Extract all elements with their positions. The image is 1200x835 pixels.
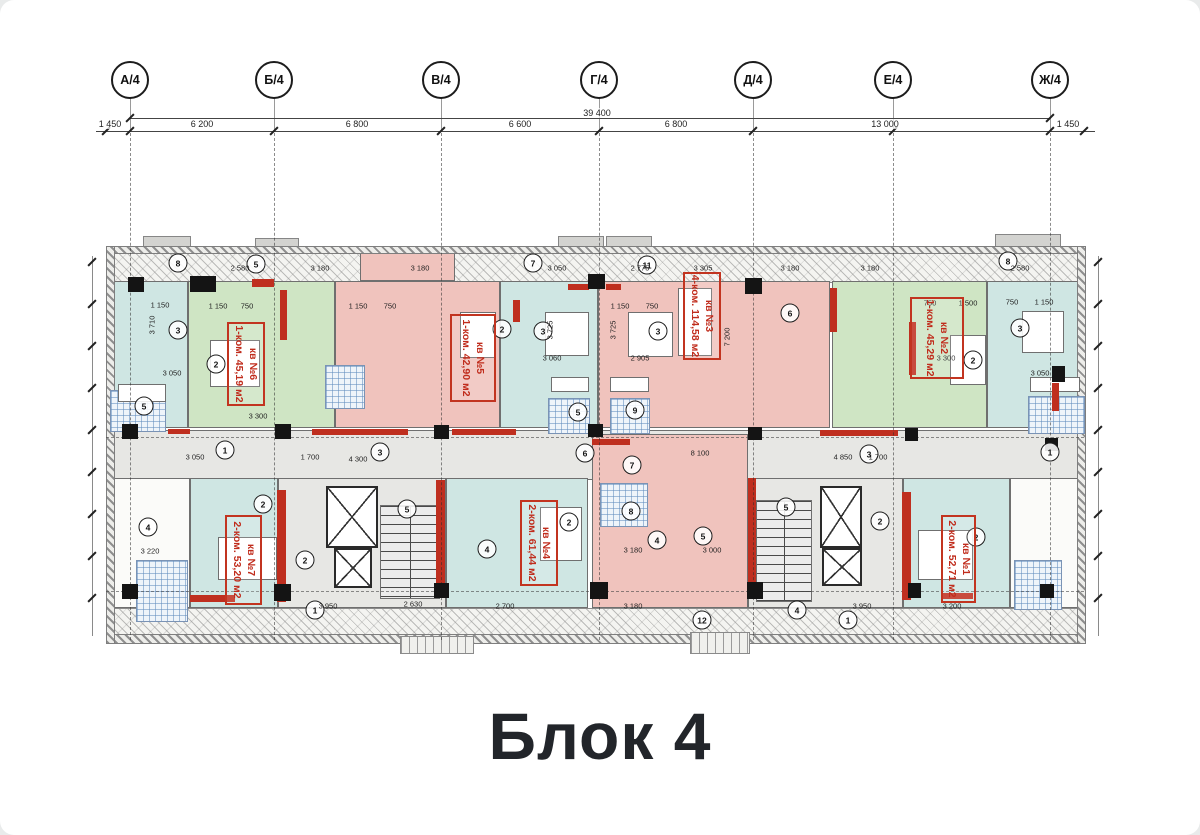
- interior-dimension: 3 725: [609, 321, 618, 340]
- interior-dimension: 3 220: [141, 547, 160, 556]
- interior-dimension: 1 700: [301, 453, 320, 462]
- column-marker: [905, 428, 918, 441]
- bearing-wall-marker: [606, 284, 621, 290]
- interior-dimension: 1 150: [151, 301, 170, 310]
- blueprint-canvas: А/4Б/4В/4Г/4Д/4Е/4Ж/4 39 4001 4506 2006 …: [0, 0, 1200, 835]
- interior-dimension: 3 050: [186, 453, 205, 462]
- room-number-bubble: 1: [216, 441, 235, 460]
- edge-dimension-chain: [92, 256, 93, 636]
- segment-dimension-label: 6 800: [663, 119, 690, 129]
- interior-dimension: 1 150: [349, 302, 368, 311]
- axis-grid-line: [130, 133, 131, 640]
- total-dimension-line: [130, 118, 1050, 119]
- exterior-wall: [106, 246, 1086, 254]
- interior-dimension: 3 950: [853, 602, 872, 611]
- axis-grid-line: [441, 133, 442, 640]
- segment-dimension-label: 1 450: [1055, 119, 1082, 129]
- apt-7-label: кв №72-ком. 53,20 м2: [225, 515, 262, 605]
- room-number-bubble: 6: [576, 444, 595, 463]
- apt-1-label-text: кв №12-ком. 52,71 м2: [944, 510, 972, 608]
- axis-grid-line: [274, 133, 275, 640]
- interior-dimension: 1 150: [209, 302, 228, 311]
- axis-extension-line: [441, 97, 442, 131]
- room-number-bubble: 2: [207, 355, 226, 374]
- room-number-bubble: 4: [648, 531, 667, 550]
- elevator-shaft: [334, 548, 372, 588]
- interior-dimension: 2 630: [404, 600, 423, 609]
- room-number-bubble: 3: [1011, 319, 1030, 338]
- axis-bubble: А/4: [111, 61, 149, 99]
- interior-dimension: 4 300: [349, 455, 368, 464]
- column-marker: [588, 274, 605, 289]
- room-number-bubble: 5: [694, 527, 713, 546]
- interior-dimension: 7 200: [723, 328, 732, 347]
- bathroom-tiles: [325, 365, 365, 409]
- interior-dimension: 3 050: [548, 264, 567, 273]
- block-title: Блок 4: [0, 698, 1200, 774]
- interior-dimension: 1 700: [869, 453, 888, 462]
- room-number-bubble: 3: [169, 321, 188, 340]
- column-marker: [434, 425, 449, 439]
- interior-dimension: 3 180: [624, 546, 643, 555]
- axis-grid-line: [753, 133, 754, 640]
- apt-1-label: кв №12-ком. 52,71 м2: [941, 515, 976, 603]
- bearing-wall-marker: [820, 430, 898, 436]
- apt-5-label: кв №51-ком. 42,90 м2: [450, 314, 496, 402]
- interior-dimension: 3 300: [249, 412, 268, 421]
- room-number-bubble: 4: [139, 518, 158, 537]
- exterior-wall: [1077, 246, 1086, 644]
- furniture: [610, 377, 649, 392]
- bearing-wall-marker: [168, 429, 190, 434]
- column-marker: [122, 584, 138, 599]
- interior-dimension: 3 050: [163, 369, 182, 378]
- interior-dimension: 3 180: [311, 264, 330, 273]
- room-number-bubble: 4: [788, 601, 807, 620]
- total-dimension-label: 39 400: [581, 108, 613, 118]
- column-marker: [748, 427, 762, 440]
- room-number-bubble: 7: [524, 254, 543, 273]
- room-number-bubble: 1: [839, 611, 858, 630]
- corridor-centerline: [106, 437, 1084, 438]
- exterior-wall: [106, 634, 1086, 644]
- column-marker: [190, 276, 216, 292]
- column-marker: [590, 582, 608, 599]
- column-marker: [434, 583, 449, 598]
- apt-6-label-text: кв №61-ком. 45,19 м2: [232, 317, 260, 411]
- axis-grid-line: [599, 133, 600, 640]
- apt-6-label: кв №61-ком. 45,19 м2: [227, 322, 265, 406]
- column-marker: [747, 582, 763, 599]
- bearing-wall-marker: [568, 284, 589, 290]
- axis-bubble: Д/4: [734, 61, 772, 99]
- elevator-shaft: [822, 548, 862, 586]
- bearing-wall-marker: [252, 279, 274, 287]
- apt-2-label-text: кв №21-ком. 45,29 м2: [923, 292, 951, 384]
- room-number-bubble: 5: [135, 397, 154, 416]
- interior-dimension: 750: [384, 302, 397, 311]
- apt-4-label-text: кв №42-ком. 61,44 м2: [525, 495, 553, 591]
- staircase: [380, 505, 440, 599]
- interior-dimension: 2 905: [631, 354, 650, 363]
- column-marker: [274, 584, 291, 601]
- interior-dimension: 3 180: [411, 264, 430, 273]
- room-number-bubble: 5: [777, 498, 796, 517]
- room-number-bubble: 3: [649, 322, 668, 341]
- axis-bubble: В/4: [422, 61, 460, 99]
- room-number-bubble: 2: [560, 513, 579, 532]
- room-number-bubble: 3: [371, 443, 390, 462]
- interior-dimension: 3 000: [703, 546, 722, 555]
- entrance-porch: [690, 632, 750, 654]
- interior-dimension: 3 060: [543, 354, 562, 363]
- axis-grid-line: [893, 133, 894, 640]
- room-number-bubble: 6: [781, 304, 800, 323]
- apt-3-label-text: кв №34-ком. 114,58 м2: [688, 267, 716, 365]
- bearing-wall-marker: [592, 439, 630, 445]
- column-marker: [745, 278, 762, 294]
- interior-dimension: 3 050: [1031, 369, 1050, 378]
- bearing-wall-marker: [312, 429, 408, 435]
- interior-dimension: 2 580: [231, 264, 250, 273]
- interior-dimension: 2 775: [631, 264, 650, 273]
- column-marker: [122, 424, 138, 439]
- elevator-shaft: [820, 486, 862, 548]
- room-number-bubble: 8: [169, 254, 188, 273]
- column-marker: [1052, 366, 1065, 382]
- interior-dimension: 750: [1006, 298, 1019, 307]
- bearing-wall-marker: [452, 429, 516, 435]
- elevator-shaft: [326, 486, 378, 548]
- bearing-wall-marker: [748, 478, 756, 587]
- interior-dimension: 3 180: [861, 264, 880, 273]
- room-number-bubble: 2: [871, 512, 890, 531]
- segment-dimension-label: 6 600: [507, 119, 534, 129]
- axis-bubble: Ж/4: [1031, 61, 1069, 99]
- bearing-wall-marker: [280, 290, 287, 340]
- interior-dimension: 750: [646, 302, 659, 311]
- apt-4-label: кв №42-ком. 61,44 м2: [520, 500, 558, 586]
- room-number-bubble: 12: [693, 611, 712, 630]
- room-number-bubble: 5: [398, 500, 417, 519]
- apt-3-label: кв №34-ком. 114,58 м2: [683, 272, 721, 360]
- column-marker: [128, 277, 144, 292]
- interior-dimension: 1 150: [1035, 298, 1054, 307]
- interior-dimension: 8 100: [691, 449, 710, 458]
- furniture: [551, 377, 589, 392]
- axis-extension-line: [753, 97, 754, 131]
- room-number-bubble: 7: [623, 456, 642, 475]
- interior-dimension: 3 710: [148, 316, 157, 335]
- axis-extension-line: [274, 97, 275, 131]
- column-marker: [908, 583, 921, 598]
- room-number-bubble: 2: [964, 351, 983, 370]
- segment-dimension-label: 1 450: [97, 119, 124, 129]
- segment-dimension-label: 6 800: [344, 119, 371, 129]
- interior-dimension: 3 180: [781, 264, 800, 273]
- segment-dimension-label: 13 000: [869, 119, 901, 129]
- interior-dimension: 4 850: [834, 453, 853, 462]
- room-number-bubble: 1: [1041, 443, 1060, 462]
- axis-bubble: Е/4: [874, 61, 912, 99]
- axis-grid-line: [1050, 133, 1051, 640]
- room-number-bubble: 5: [569, 403, 588, 422]
- column-marker: [1040, 584, 1054, 598]
- room-number-bubble: 8: [622, 502, 641, 521]
- interior-dimension: 750: [241, 302, 254, 311]
- interior-dimension: 1 150: [611, 302, 630, 311]
- interior-dimension: 3 180: [624, 602, 643, 611]
- exterior-wall: [106, 246, 115, 644]
- bearing-wall-marker: [513, 300, 520, 322]
- column-marker: [275, 424, 291, 439]
- bearing-wall-marker: [1052, 383, 1059, 411]
- interior-dimension: 3 725: [546, 321, 555, 340]
- interior-dimension: 3 950: [319, 602, 338, 611]
- entrance-porch: [400, 636, 474, 654]
- apt-7-label-text: кв №72-ком. 53,20 м2: [229, 510, 257, 610]
- apt-2-label: кв №21-ком. 45,29 м2: [910, 297, 964, 379]
- interior-dimension: 2 700: [496, 602, 515, 611]
- apt-5-label-text: кв №51-ком. 42,90 м2: [459, 309, 487, 407]
- room-number-bubble: 4: [478, 540, 497, 559]
- axis-bubble: Б/4: [255, 61, 293, 99]
- bathroom-tiles: [1014, 560, 1062, 610]
- room-number-bubble: 9: [626, 401, 645, 420]
- axis-bubble: Г/4: [580, 61, 618, 99]
- segment-dimension-label: 6 200: [189, 119, 216, 129]
- column-marker: [588, 424, 603, 437]
- room-number-bubble: 2: [296, 551, 315, 570]
- bearing-wall-marker: [830, 288, 837, 332]
- edge-dimension-chain: [1098, 256, 1099, 636]
- interior-dimension: 2 580: [1011, 264, 1030, 273]
